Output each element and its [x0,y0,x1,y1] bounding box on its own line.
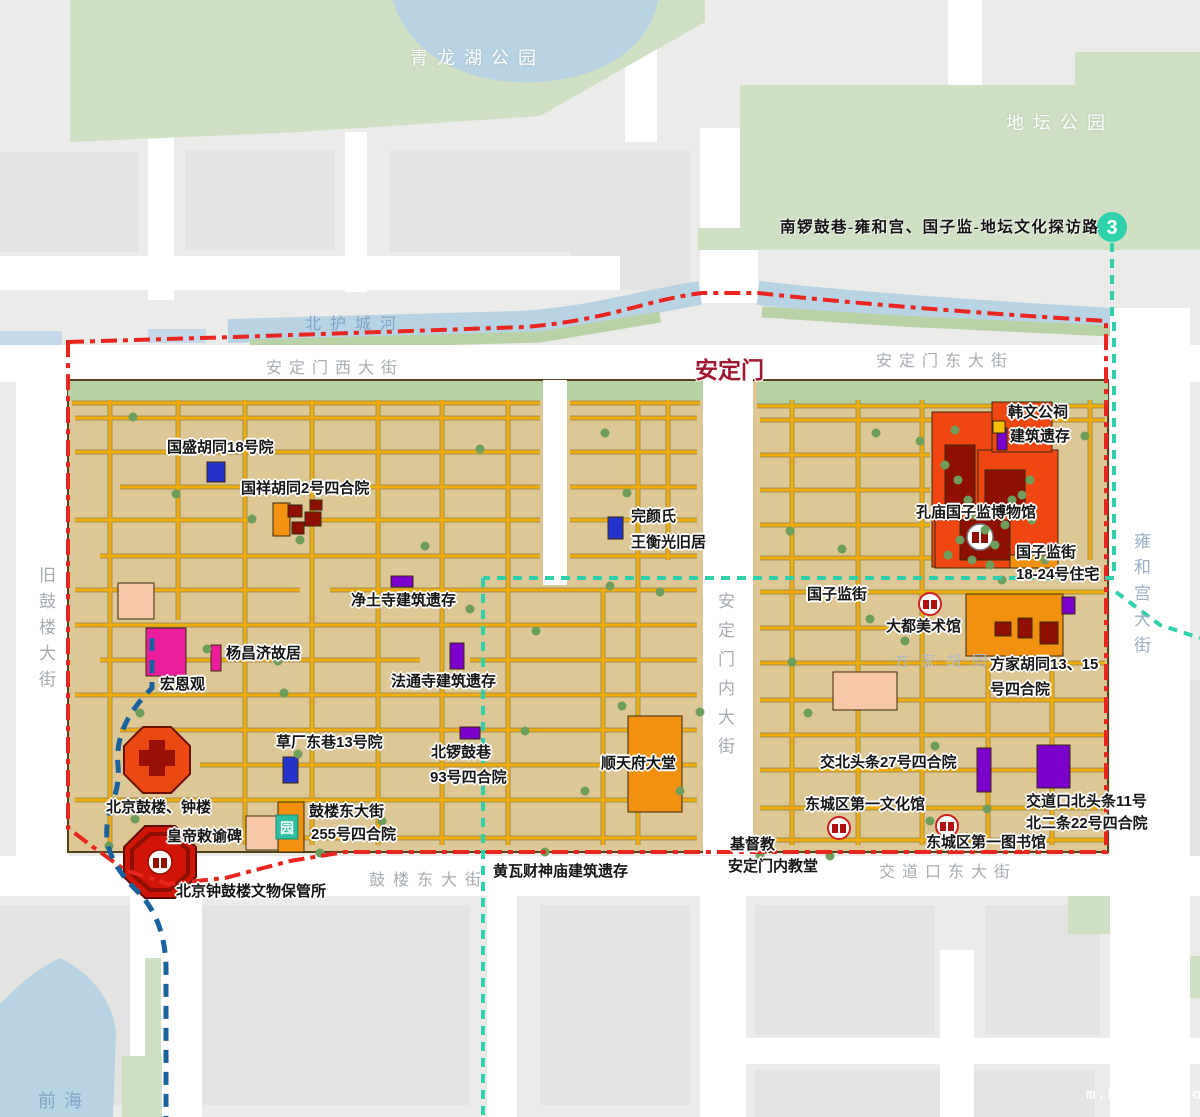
landmark-label-tushuguan: 东城区第一图书馆 [926,835,1046,852]
landmark-label-caochang: 草厂东巷13号院 [276,735,383,752]
city-map: 园 3 青龙湖公园 地坛公园 北 [0,0,1200,1117]
landmark-label-jiaodaokou11-line2: 北二条22号四合院 [1026,816,1148,833]
dadu-museum-icon [919,593,941,615]
river-label-north-moat: 北护城河 [305,310,405,334]
landmark-label-guozijian1824-line1: 国子监街 [1016,545,1076,562]
landmark-label-huangwa: 黄瓦财神庙建筑遗存 [493,864,628,881]
landmark-label-gulou-zhonglou: 北京鼓楼、钟楼 [106,800,211,817]
drum-tower-museum-icon [148,850,172,874]
landmark-label-beiluogu-line2: 93号四合院 [430,770,507,787]
landmark-label-jidujiao-line1: 基督教 [730,837,775,854]
street-label-jiaodaokou-east: 交道口东大街 [879,858,1017,882]
street-label-andingmen-east: 安定门东大街 [876,347,1014,371]
street-label-andingmen-inner: 安定门内大街 [712,592,737,766]
bell-tower [124,727,190,793]
landmark-label-fangjia1315-line2: 号四合院 [990,682,1050,699]
landmark-label-wanyan-line1: 完颜氏 [631,509,676,526]
park-label-qinglonghu: 青龙湖公园 [410,44,545,70]
landmark-label-hanwen-line2: 建筑遗存 [1010,429,1070,446]
landmark-label-dadu: 大都美术馆 [886,619,961,636]
landmark-label-guozijian1824-line2: 18-24号住宅 [1016,567,1099,584]
park-label-ditan: 地坛公园 [1006,109,1114,135]
landmark-label-jingtusi: 净土寺建筑遗存 [351,593,456,610]
landmark-label-jidujiao-line2: 安定门内教堂 [728,859,818,876]
garden-icon: 园 [276,815,298,839]
landmark-label-huangdi-bei: 皇帝敕谕碑 [167,829,242,846]
landmark-label-fangjia1315-line1: 方家胡同13、15 [990,657,1098,674]
culture-route-label: 南锣鼓巷-雍和宫、国子监-地坛文化探访路 [780,215,1099,237]
street-label-yonghegong: 雍和宫大街 [1128,532,1153,662]
landmark-label-fatongsi: 法通寺建筑遗存 [391,674,496,691]
landmark-label-gulou255-line1: 鼓楼东大街 [309,804,384,821]
watermark: m.ktxcqx.com [1086,1086,1200,1104]
andingmen-street-band [0,345,1200,382]
landmark-label-gulou255-line2: 255号四合院 [311,827,396,844]
green-strip [122,1056,162,1117]
landmark-label-yangchangji: 杨昌济故居 [226,646,301,663]
landmark-label-guozijian-jie: 国子监街 [807,587,867,604]
landmark-label-kongmiao: 孔庙国子监博物馆 [916,505,1036,522]
landmark-label-jiaobei27: 交北头条27号四合院 [820,755,957,772]
street-label-gulou-east: 鼓楼东大街 [369,866,489,890]
landmark-label-guosheng: 国盛胡同18号院 [167,440,274,457]
landmark-label-hanwen-line1: 韩文公祠 [1008,405,1068,422]
landmark-label-hongen: 宏恩观 [160,677,205,694]
landmark-label-wanyan-line2: 王衡光旧居 [631,535,706,552]
landmark-label-guoxiang: 国祥胡同2号四合院 [241,481,369,498]
route-badge-number: 3 [1106,217,1117,239]
street-label-jiugulou: 旧鼓楼大街 [33,566,58,696]
water-label-qianhai: 前海 [38,1087,90,1113]
wenhuaguan-icon [828,817,850,839]
yellow-building [993,421,1005,433]
kongmiao-museum-icon [967,524,993,550]
garden-icon-char: 园 [280,820,294,836]
street-label-andingmen-west: 安定门西大街 [266,354,404,378]
landmark-label-jiaodaokou11-line1: 交道口北头条11号 [1026,794,1147,811]
gate-label-andingmen: 安定门 [695,351,764,385]
route-badge: 3 [1097,212,1127,242]
landmark-label-beiluogu-line1: 北锣鼓巷 [431,745,491,762]
landmark-label-shuntianfu: 顺天府大堂 [601,756,676,773]
street-label-fangjia: 方家胡同 [894,650,998,671]
landmark-label-wenwu-baoguansuo: 北京钟鼓楼文物保管所 [176,884,326,901]
landmark-label-wenhuaguan: 东城区第一文化馆 [805,797,925,814]
